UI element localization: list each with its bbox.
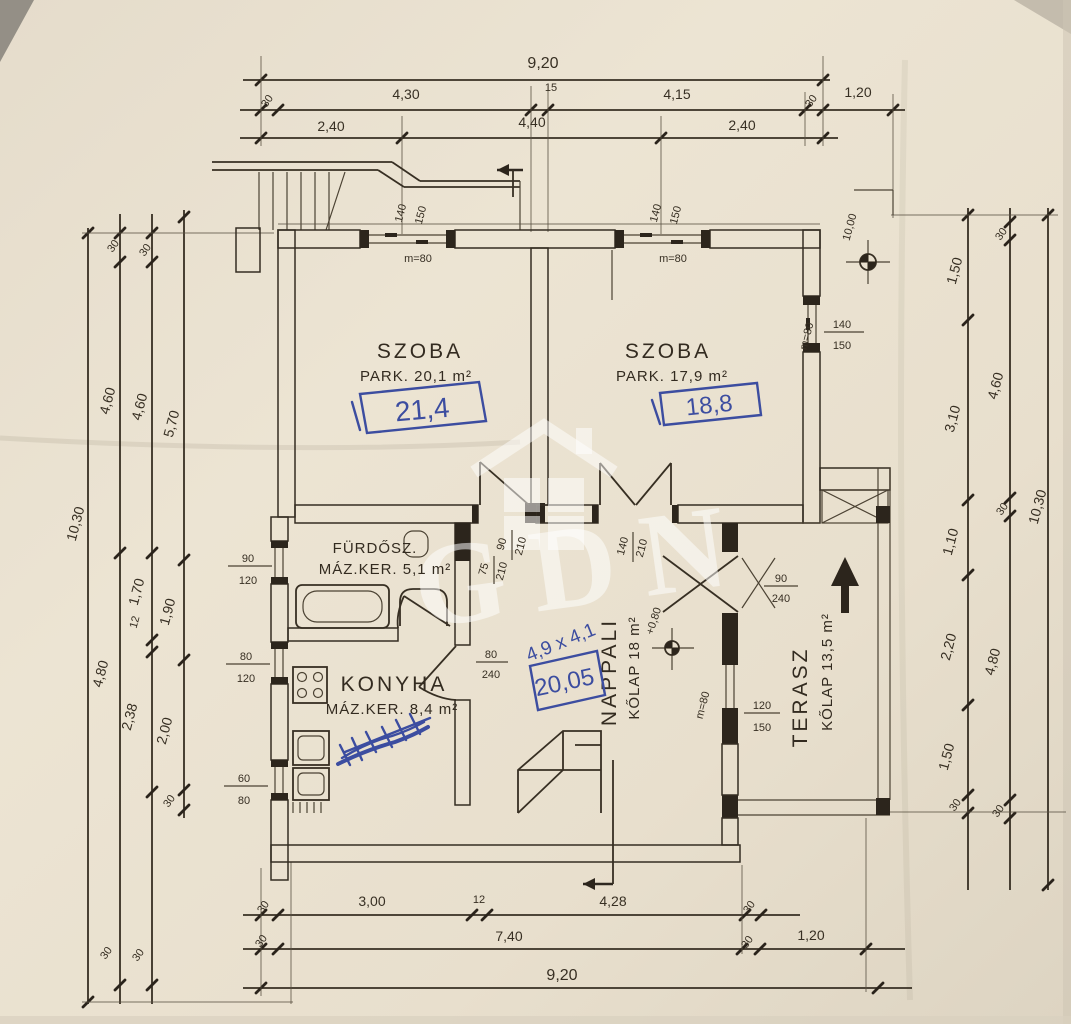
label: 120	[237, 673, 255, 685]
svg-text:18,8: 18,8	[685, 390, 734, 422]
label: m=80	[659, 253, 687, 265]
dim: 12	[473, 894, 485, 906]
room-szoba-left-name: SZOBA	[377, 340, 463, 363]
room-szoba-left-floor: PARK. 20,1 m²	[360, 368, 472, 385]
label: 120	[239, 575, 257, 587]
dim: 2,40	[728, 117, 755, 133]
room-bath-floor: MÁZ.KER. 5,1 m²	[319, 561, 452, 578]
label: 140	[833, 319, 851, 331]
room-terasz-name: TERASZ	[789, 647, 812, 748]
dim: 15	[545, 82, 557, 94]
label: 80	[485, 649, 497, 661]
label: 240	[482, 669, 500, 681]
dim: 2,40	[317, 118, 344, 134]
room-kitchen-name: KONYHA	[341, 673, 448, 696]
dim: 1,20	[797, 927, 824, 943]
label: m=80	[404, 253, 432, 265]
dim: 3,00	[358, 893, 385, 909]
label: 240	[772, 593, 790, 605]
room-szoba-right-floor: PARK. 17,9 m²	[616, 368, 728, 385]
room-nappali-floor: KŐLAP 18 m²	[626, 616, 643, 719]
floorplan-scan: 9,20 30 4,30 15 4,15 30 1,20 2,40 4,40 2…	[0, 0, 1071, 1024]
dim: 4,15	[663, 86, 690, 102]
label: 90	[242, 553, 254, 565]
label: 150	[833, 340, 851, 352]
dim: 7,40	[495, 928, 522, 944]
room-szoba-right-name: SZOBA	[625, 340, 711, 363]
dim: 4,40	[518, 114, 545, 130]
label: 60	[238, 773, 250, 785]
label: 150	[753, 722, 771, 734]
label: 120	[753, 700, 771, 712]
room-terasz-floor: KŐLAP 13,5 m²	[819, 613, 836, 731]
room-kitchen-floor: MÁZ.KER. 8,4 m²	[326, 701, 459, 718]
label: 80	[240, 651, 252, 663]
dim: 4,30	[392, 86, 419, 102]
dim-bottom-total: 9,20	[546, 967, 577, 984]
room-bath-name: FÜRDŐSZ.	[333, 539, 418, 557]
label: 90	[775, 573, 787, 585]
label: 80	[238, 795, 250, 807]
dim: 1,20	[844, 84, 871, 100]
svg-text:21,4: 21,4	[394, 392, 451, 428]
dim: 4,28	[599, 893, 626, 909]
dim-top-total: 9,20	[527, 55, 558, 72]
